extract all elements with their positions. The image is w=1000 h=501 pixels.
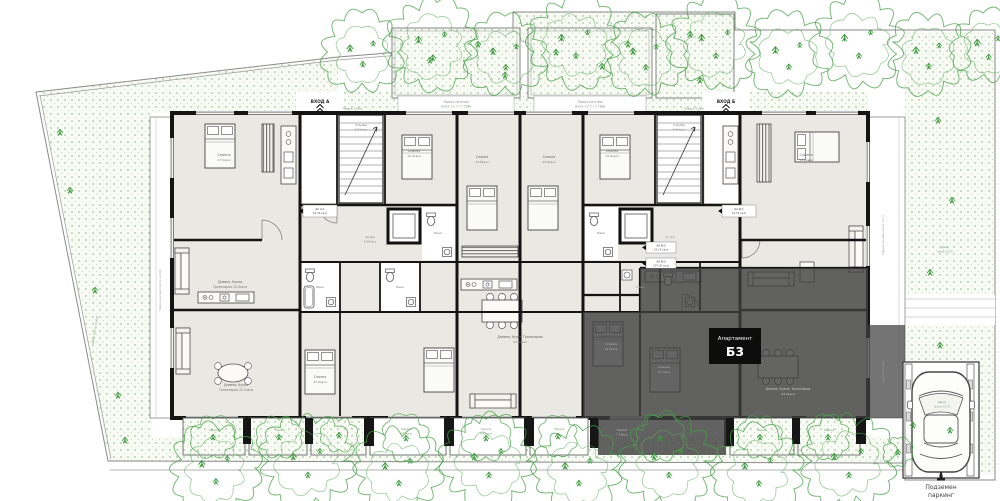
room-label: Дневна, Кухня, Трапезария bbox=[766, 387, 811, 391]
room-label: Тераса bbox=[480, 427, 492, 431]
entrance-a-label: ВХОД A bbox=[311, 99, 330, 104]
room-label: Ап Б-2 bbox=[656, 244, 666, 248]
left-terrace-strip bbox=[150, 117, 172, 418]
yard-left bbox=[40, 92, 152, 458]
room-label: (кота +2.7 / 7.78м) bbox=[575, 105, 606, 109]
room-label: 24.9кв.м bbox=[781, 392, 794, 396]
sprig-icon bbox=[995, 35, 1000, 41]
room-label: 14.9кв.м bbox=[799, 158, 812, 162]
kitchen-counter-icon bbox=[461, 279, 517, 290]
room-label: 4.63кв.м bbox=[480, 432, 492, 436]
room-label: Спалня bbox=[605, 342, 617, 346]
room-label: 7.14кв.м bbox=[616, 433, 628, 437]
entrance-b-label: ВХОД Б bbox=[717, 99, 735, 104]
sprig-icon bbox=[382, 462, 389, 469]
toilet-icon bbox=[386, 269, 395, 282]
room-label: 12.9кв.м bbox=[605, 154, 618, 158]
bottom-terraces bbox=[183, 418, 866, 455]
room-label: Спалня bbox=[606, 149, 618, 153]
sprig-icon bbox=[741, 462, 748, 469]
room-label: 17.5кв.м bbox=[217, 158, 230, 162]
apartment-badge-title: Апартамент bbox=[718, 336, 752, 342]
room-label: Ап Б-3 bbox=[656, 260, 666, 264]
bed-icon bbox=[467, 186, 497, 230]
room-label: Спалня bbox=[408, 149, 420, 153]
toilet-icon bbox=[590, 213, 599, 226]
sink-icon bbox=[443, 248, 452, 257]
room-label: Антре bbox=[665, 235, 675, 239]
room-label: Ап А-1 bbox=[315, 207, 325, 211]
room-label: Спалня bbox=[314, 375, 326, 379]
sprig-icon bbox=[486, 472, 492, 478]
room-label: Стълби bbox=[355, 123, 367, 127]
room-label: Тераса bbox=[756, 428, 768, 432]
room-label: 4.63кв.м bbox=[400, 432, 412, 436]
room-label: Мокро bbox=[635, 285, 645, 289]
toilet-icon bbox=[306, 269, 315, 282]
parking-label: паркинг bbox=[928, 492, 954, 499]
room-label: Дневна, Кухня Трапезария bbox=[497, 335, 542, 339]
sprig-icon bbox=[562, 462, 569, 469]
sprig-icon bbox=[396, 480, 402, 486]
sprig-icon bbox=[360, 61, 366, 67]
sink-icon bbox=[327, 298, 336, 307]
room-label: Спалня bbox=[658, 365, 670, 369]
sprig-icon bbox=[305, 472, 311, 478]
room-label: 15.0кв.м bbox=[605, 347, 618, 351]
room-label: Тераса на етаж bbox=[576, 100, 603, 104]
room-label: Спалня bbox=[543, 155, 555, 159]
floor-plan-svg: Апартамент Б3 ВХОД AВХОД БТераса на етаж… bbox=[0, 0, 1000, 501]
room-label: Баня bbox=[316, 285, 324, 289]
room-label: Трапезария 22.1кв.м bbox=[218, 388, 254, 392]
room-label: Стълби bbox=[673, 123, 685, 127]
room-label: Тераса 2.96м bbox=[683, 107, 703, 111]
parking-label: Подземен bbox=[925, 484, 956, 491]
yard-right-lower bbox=[905, 325, 995, 362]
room-label: 61.39 кв.м bbox=[732, 211, 746, 215]
room-label: 11.7кв.м bbox=[658, 370, 671, 374]
apartment-badge-number: Б3 bbox=[726, 344, 744, 359]
room-label: Тераса на ниво (кота +0.00) bbox=[158, 269, 162, 312]
room-label: Тераса на етаж bbox=[442, 100, 469, 104]
room-label: 13.8кв.м bbox=[475, 160, 488, 164]
room-label: 8.06кв.м bbox=[364, 240, 377, 244]
room-label: 107.30 кв.м bbox=[653, 264, 669, 268]
room-label: Дневна, Кухня bbox=[224, 383, 248, 387]
bed-icon bbox=[528, 186, 558, 230]
sprig-icon bbox=[841, 34, 848, 41]
room-label: Тераса на ниво bbox=[881, 360, 885, 384]
room-label: 55.25 кв.м bbox=[654, 248, 668, 252]
room-label: 8.93кв.м bbox=[355, 128, 368, 132]
room-label: Тераса 2.96м bbox=[341, 107, 361, 111]
room-label: Баня bbox=[597, 231, 605, 235]
sprig-icon bbox=[213, 478, 219, 484]
bed-icon bbox=[424, 348, 454, 392]
room-label: Антре bbox=[365, 235, 375, 239]
sofa-icon bbox=[470, 394, 516, 408]
room-label: Тераса bbox=[823, 428, 835, 432]
room-label: Тераса bbox=[208, 428, 220, 432]
wardrobe-icon bbox=[262, 124, 274, 172]
elevator-icon bbox=[620, 209, 652, 243]
room-label: 8.93кв.м bbox=[673, 128, 686, 132]
roof-garden-boxes bbox=[392, 14, 734, 113]
sprig-icon bbox=[347, 45, 354, 52]
room-label: Трапезария 24.3кв.м bbox=[212, 285, 248, 289]
room-label: Баня bbox=[396, 285, 404, 289]
room-label: Тераса bbox=[400, 427, 412, 431]
car-icon bbox=[908, 372, 975, 472]
wardrobe-icon bbox=[757, 124, 771, 182]
parking-ramp bbox=[903, 362, 979, 481]
room-label: Баня bbox=[434, 231, 442, 235]
room-label: (кота +2.7 / 7.78м) bbox=[441, 105, 472, 109]
room-label: Тераса на ниво (кота +2.7) bbox=[881, 215, 885, 256]
sprig-icon bbox=[786, 64, 792, 70]
room-label: Спалня bbox=[476, 155, 488, 159]
apartment-b3-badge: Апартамент Б3 bbox=[709, 328, 761, 364]
sink-icon bbox=[604, 248, 613, 257]
sofa-icon bbox=[849, 226, 863, 272]
room-label: 15.6кв.м bbox=[313, 380, 326, 384]
room-label: Тераса bbox=[616, 428, 628, 432]
room-label: Тераса bbox=[553, 427, 565, 431]
floor-plan-page: Апартамент Б3 ВХОД AВХОД БТераса на етаж… bbox=[0, 0, 1000, 501]
yard-top-left bbox=[40, 58, 338, 92]
room-label: 12.9кв.м bbox=[407, 154, 420, 158]
sprig-icon bbox=[772, 46, 779, 53]
room-label: 13.8кв.м bbox=[542, 160, 555, 164]
room-label: (кота +2.7) bbox=[937, 250, 954, 254]
tree-icon bbox=[809, 0, 905, 89]
wardrobe-icon bbox=[462, 246, 518, 257]
washer-icon bbox=[622, 270, 632, 280]
bathtub-icon bbox=[304, 286, 314, 308]
room-label: Спалня bbox=[799, 153, 812, 157]
room-label: Спалня bbox=[217, 153, 230, 157]
sofa-icon bbox=[176, 328, 190, 374]
sofa-icon bbox=[175, 248, 189, 294]
tree-icon bbox=[746, 10, 833, 98]
tree-icon bbox=[825, 13, 889, 77]
tree-icon bbox=[759, 29, 818, 84]
room-label: Двор bbox=[938, 400, 946, 404]
room-label: Дневна, Кухня bbox=[218, 280, 242, 284]
yard-right bbox=[905, 32, 995, 294]
kitchen-counter-icon bbox=[723, 126, 738, 184]
room-label: Двор bbox=[941, 245, 949, 249]
toilet-icon bbox=[427, 213, 436, 226]
sprig-icon bbox=[846, 472, 852, 478]
room-label: Тераса bbox=[274, 428, 286, 432]
bed-icon bbox=[305, 350, 335, 394]
sprig-icon bbox=[576, 480, 582, 486]
tree-icon bbox=[336, 26, 388, 82]
room-label: Ап Б-1 bbox=[734, 207, 744, 211]
tree-icon bbox=[809, 0, 905, 89]
sprig-icon bbox=[856, 53, 862, 59]
sprig-icon bbox=[666, 472, 672, 478]
yard-right-of-ramp bbox=[980, 362, 995, 474]
elevator-icon bbox=[388, 209, 420, 243]
kitchen-counter-icon bbox=[281, 126, 296, 184]
sprig-icon bbox=[797, 42, 802, 48]
room-label: (кота +2.7) bbox=[934, 405, 951, 409]
room-label: 23.6кв.м bbox=[513, 340, 526, 344]
sprig-icon bbox=[371, 40, 376, 46]
sink-icon bbox=[407, 298, 416, 307]
sprig-icon bbox=[756, 480, 762, 486]
room-label: 61.39 кв.м bbox=[313, 211, 327, 215]
kitchen-counter-icon bbox=[198, 292, 254, 303]
tree-icon bbox=[746, 10, 833, 98]
dining-table-icon bbox=[215, 363, 252, 385]
